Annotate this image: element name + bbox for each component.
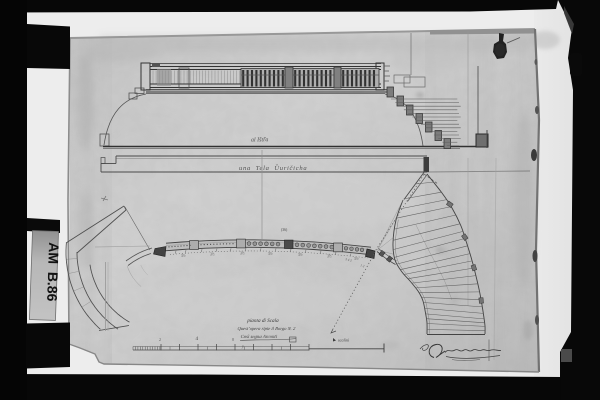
svg-text:pianta di Scala: pianta di Scala bbox=[246, 318, 279, 324]
svg-text:(36): (36) bbox=[281, 228, 288, 232]
svg-text:3½: 3½ bbox=[327, 255, 332, 259]
svg-text:Questʼopera ripie il Borgo N.: Questʼopera ripie il Borgo N. 2 bbox=[237, 326, 296, 331]
svg-text:3½: 3½ bbox=[240, 252, 245, 256]
svg-text:al Ištľa: al Ištľa bbox=[251, 137, 268, 143]
svg-text:3½: 3½ bbox=[181, 254, 186, 258]
svg-text:3½: 3½ bbox=[210, 252, 215, 256]
svg-text:AM B.86: AM B.86 bbox=[44, 242, 62, 302]
svg-text:3½: 3½ bbox=[354, 257, 359, 261]
svg-text:2: 2 bbox=[159, 337, 161, 342]
svg-text:una Tela Ȕuričicha: una Tela Ȕuričicha bbox=[239, 164, 307, 172]
svg-text:3½: 3½ bbox=[298, 253, 303, 257]
svg-text:3½: 3½ bbox=[268, 252, 273, 256]
svg-text:y: y bbox=[241, 344, 244, 349]
svg-text:scalini: scalini bbox=[338, 338, 350, 343]
svg-text:8: 8 bbox=[232, 337, 234, 342]
svg-text:Così segna Arconti: Così segna Arconti bbox=[240, 335, 278, 340]
